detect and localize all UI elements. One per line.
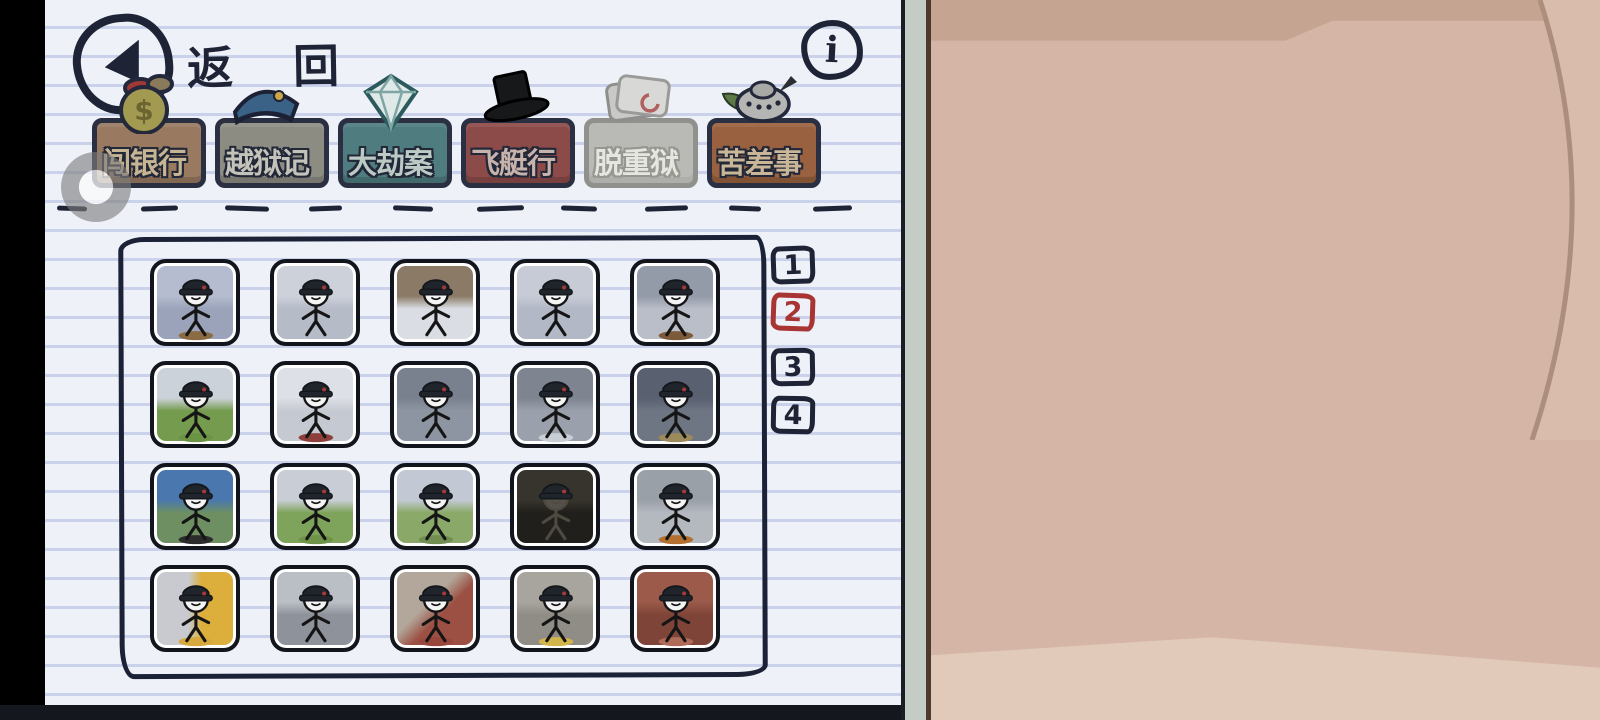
tab-escape-the-prison[interactable]: 越狱记: [215, 88, 327, 200]
notebook-page: 返 回 i $闯银行越狱记大劫案飞艇行脱重狱苦差事 1234: [45, 0, 901, 720]
page-curl: [1520, 0, 1600, 440]
char-machinegun-snow[interactable]: [150, 463, 240, 550]
desk-shadow-band: [931, 0, 1600, 58]
page-button-1[interactable]: 1: [770, 245, 815, 285]
tab-infiltrate-the-airship[interactable]: 飞艇行: [461, 88, 573, 200]
char-turret-rider[interactable]: [390, 463, 480, 550]
info-button[interactable]: i: [799, 18, 864, 81]
category-tabs: $闯银行越狱记大劫案飞艇行脱重狱苦差事: [92, 88, 892, 200]
char-snow-wall[interactable]: [510, 361, 600, 448]
char-fence-radio[interactable]: [270, 361, 360, 448]
char-hooded-mustache[interactable]: [630, 259, 720, 346]
dash-icon: [729, 205, 761, 211]
dash-icon: [561, 205, 597, 211]
char-blonde-capture[interactable]: [150, 565, 240, 652]
char-orange-beard[interactable]: [630, 463, 720, 550]
page-button-3[interactable]: 3: [771, 348, 816, 387]
badge-label: 苦差事: [707, 140, 811, 182]
tab-flee-the-complex[interactable]: 脱重狱: [584, 88, 696, 200]
char-blonde-mechanic[interactable]: [510, 565, 600, 652]
desk-background: 264475368 (C) PuffballsUnited: [931, 0, 1600, 720]
pagination: 1234: [771, 246, 815, 434]
char-rope-swing[interactable]: [270, 565, 360, 652]
page-divider: [901, 0, 931, 720]
bottom-letterbox: [0, 705, 931, 720]
badge-label: 脱重狱: [584, 140, 688, 182]
char-spear-guard[interactable]: [630, 361, 720, 448]
desk-highlight: [931, 630, 1600, 720]
screen: 返 回 i $闯银行越狱记大劫案飞艇行脱重狱苦差事 1234: [0, 0, 1600, 720]
char-nest-soldier[interactable]: [150, 259, 240, 346]
char-salute-soldier[interactable]: [510, 259, 600, 346]
char-crouch-snow[interactable]: [390, 259, 480, 346]
page-button-2[interactable]: 2: [770, 292, 815, 332]
char-lean-gun[interactable]: [390, 361, 480, 448]
tab-complete-the-mission[interactable]: 苦差事: [707, 88, 819, 200]
char-tank-hatch[interactable]: [150, 361, 240, 448]
badge-label: 飞艇行: [461, 140, 565, 182]
char-truck-front[interactable]: [270, 463, 360, 550]
dash-icon: [309, 205, 342, 211]
page-button-4[interactable]: 4: [771, 396, 816, 435]
dash-icon: [141, 205, 178, 211]
char-rifle-soldier[interactable]: [270, 259, 360, 346]
left-letterbox: [0, 0, 45, 720]
tab-steal-the-diamond[interactable]: 大劫案: [338, 88, 450, 200]
char-console-operator[interactable]: [390, 565, 480, 652]
badge-label: 大劫案: [338, 140, 442, 182]
touch-ring-icon: [61, 152, 131, 222]
dash-icon: [645, 205, 688, 211]
dash-icon: [225, 205, 269, 212]
char-brick-pistol[interactable]: [630, 565, 720, 652]
badge-label: 越狱记: [215, 140, 319, 182]
dash-icon: [393, 205, 433, 211]
char-dark-raid[interactable]: [510, 463, 600, 550]
dash-icon: [477, 205, 524, 212]
dash-icon: [813, 205, 852, 211]
